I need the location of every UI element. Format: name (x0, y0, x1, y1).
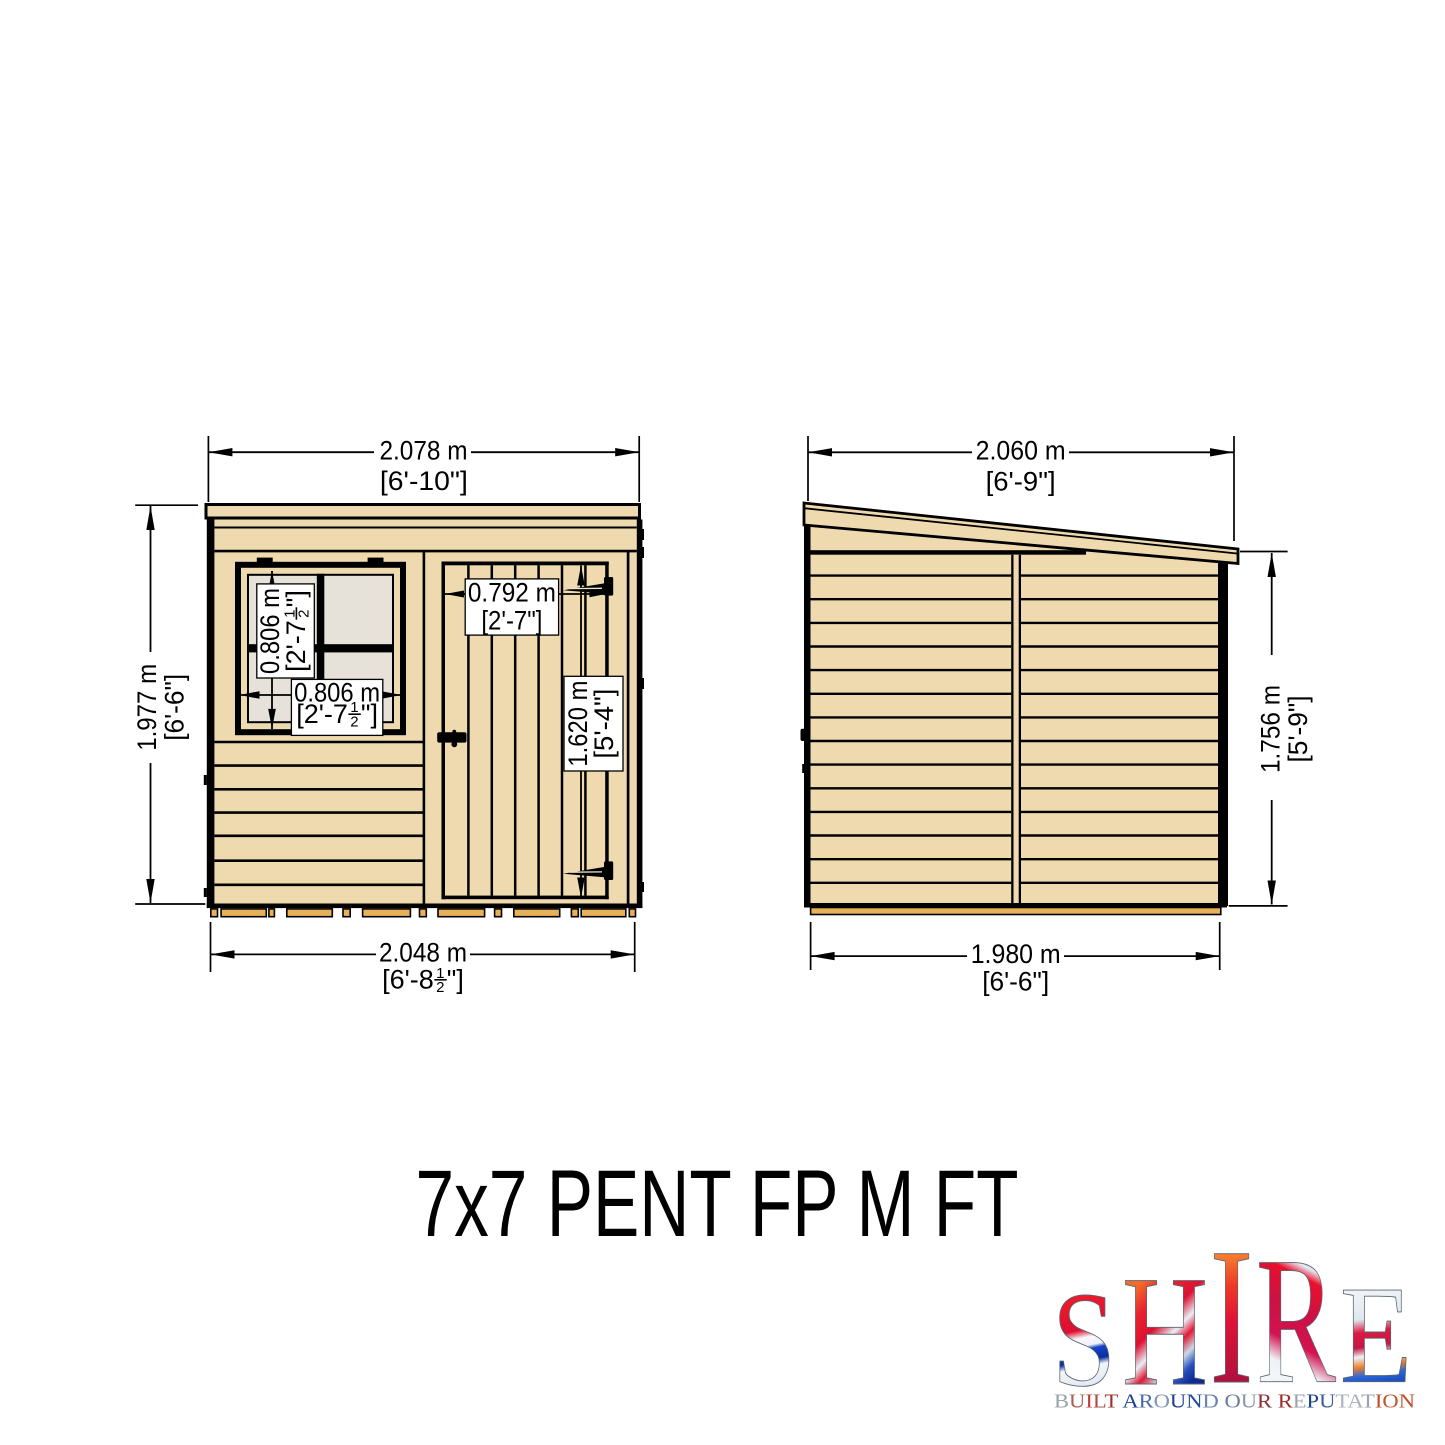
svg-text:"]: "] (281, 590, 311, 607)
svg-text:2.060 m: 2.060 m (976, 435, 1066, 465)
svg-text:2: 2 (296, 610, 313, 618)
svg-text:"]: "] (361, 699, 378, 729)
svg-text:"]: "] (447, 964, 464, 994)
svg-text:1.980 m: 1.980 m (971, 939, 1061, 969)
svg-text:0.792 m: 0.792 m (468, 577, 556, 607)
svg-text:[2'-7: [2'-7 (281, 620, 311, 672)
svg-text:[6'-10"]: [6'-10"] (380, 466, 468, 496)
svg-text:[6'-6"]: [6'-6"] (160, 674, 190, 741)
svg-text:E: E (1340, 1258, 1412, 1413)
svg-text:[5'-4"]: [5'-4"] (589, 689, 619, 759)
svg-text:[2'-7: [2'-7 (296, 699, 348, 729)
svg-text:[2'-7"]: [2'-7"] (481, 605, 542, 635)
svg-text:1.756 m: 1.756 m (1256, 685, 1286, 773)
svg-text:2: 2 (436, 979, 444, 996)
svg-text:[6'-9"]: [6'-9"] (986, 466, 1056, 496)
svg-text:BUILT AROUND OUR REPUTATION: BUILT AROUND OUR REPUTATION (1054, 1392, 1415, 1413)
svg-text:2.078 m: 2.078 m (380, 435, 468, 465)
svg-text:2: 2 (350, 713, 358, 730)
svg-text:[6'-8: [6'-8 (382, 964, 434, 994)
svg-text:[5'-9"]: [5'-9"] (1283, 696, 1313, 763)
svg-text:2.048 m: 2.048 m (379, 937, 467, 967)
svg-text:7x7 PENT FP M FT: 7x7 PENT FP M FT (416, 1151, 1019, 1257)
svg-text:[6'-6"]: [6'-6"] (982, 966, 1049, 996)
svg-text:1.977 m: 1.977 m (132, 664, 162, 751)
